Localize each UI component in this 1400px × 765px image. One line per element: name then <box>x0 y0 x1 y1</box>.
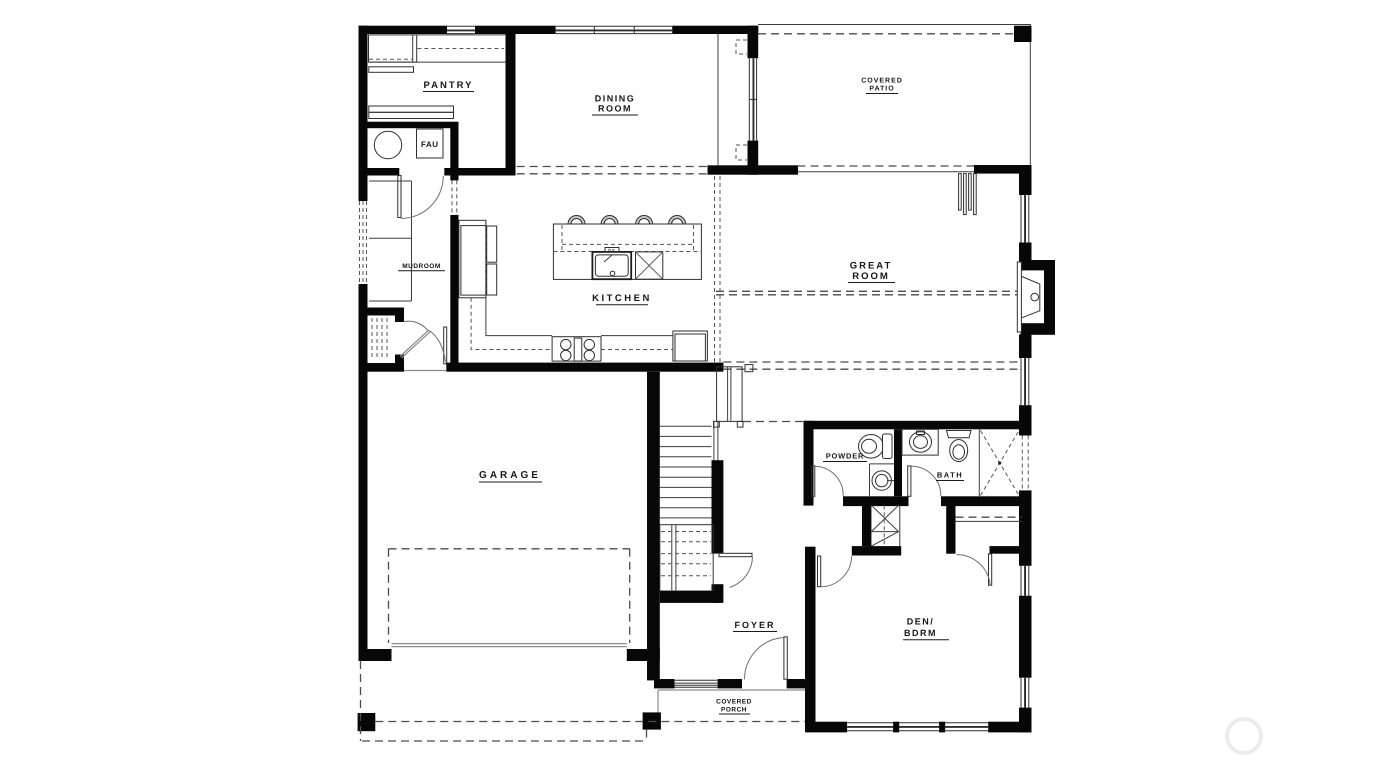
svg-text:FAU: FAU <box>421 140 439 149</box>
svg-text:BATH: BATH <box>937 471 963 480</box>
svg-text:BDRM: BDRM <box>904 628 937 638</box>
svg-text:D.S.: D.S. <box>608 248 615 252</box>
svg-text:COVERED: COVERED <box>861 78 903 85</box>
svg-text:PORCH: PORCH <box>721 707 747 714</box>
svg-text:GARAGE: GARAGE <box>479 470 541 481</box>
svg-text:KITCHEN: KITCHEN <box>592 293 652 304</box>
svg-text:ROOM: ROOM <box>852 271 890 282</box>
svg-text:DEN/: DEN/ <box>907 617 935 627</box>
svg-text:DINING: DINING <box>595 94 636 104</box>
svg-text:PATIO: PATIO <box>869 86 894 93</box>
svg-text:MUDROOM: MUDROOM <box>402 263 441 270</box>
svg-text:PANTRY: PANTRY <box>424 80 474 91</box>
svg-text:COVERED: COVERED <box>716 699 752 706</box>
svg-text:GREAT: GREAT <box>850 261 893 272</box>
svg-text:POWDER: POWDER <box>826 452 865 461</box>
svg-text:ROOM: ROOM <box>598 104 632 114</box>
svg-text:FOYER: FOYER <box>734 620 775 630</box>
